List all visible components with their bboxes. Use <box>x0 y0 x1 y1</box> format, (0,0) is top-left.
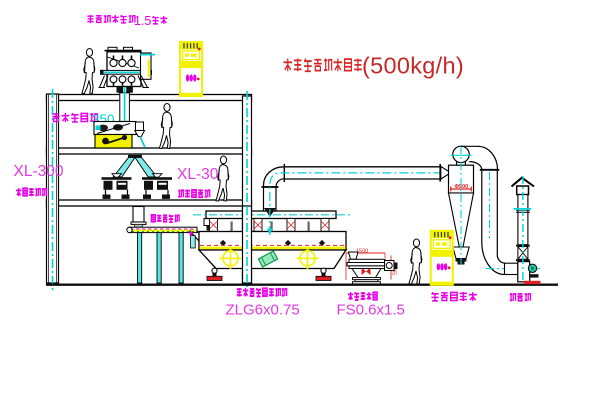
svg-text:(500kg/h): (500kg/h) <box>362 53 464 79</box>
svg-text:XL-300: XL-300 <box>14 163 64 180</box>
svg-text:1.5: 1.5 <box>134 14 151 28</box>
svg-text:FS0.6x1.5: FS0.6x1.5 <box>337 302 405 319</box>
svg-text:ZLG6x0.75: ZLG6x0.75 <box>226 302 300 319</box>
